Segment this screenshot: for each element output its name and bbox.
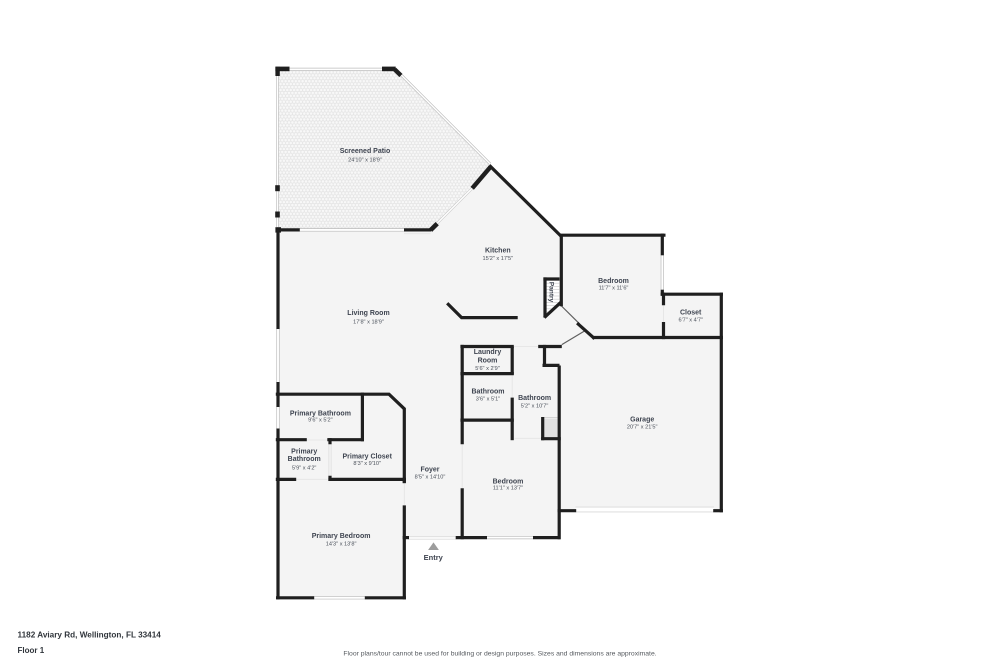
svg-text:20'7" x 21'5": 20'7" x 21'5" (627, 424, 658, 430)
svg-text:11'7" x 11'6": 11'7" x 11'6" (599, 285, 629, 291)
svg-text:Bathroom: Bathroom (471, 389, 504, 396)
svg-text:8'5" x 14'10": 8'5" x 14'10" (415, 475, 446, 481)
svg-text:Living Room: Living Room (347, 310, 389, 317)
svg-text:Foyer: Foyer (420, 467, 439, 474)
svg-text:15'2" x 17'5": 15'2" x 17'5" (482, 256, 513, 262)
svg-text:Bedroom: Bedroom (493, 479, 524, 486)
svg-text:Primary Closet: Primary Closet (342, 454, 392, 461)
svg-text:Entry: Entry (424, 553, 444, 562)
svg-text:3'6" x 5'1": 3'6" x 5'1" (476, 397, 500, 403)
svg-text:5'2" x 10'7": 5'2" x 10'7" (521, 403, 549, 409)
svg-text:6'7" x 4'7": 6'7" x 4'7" (678, 317, 702, 323)
svg-text:Floor 1: Floor 1 (18, 646, 45, 655)
svg-text:17'8" x 18'9": 17'8" x 18'9" (353, 320, 384, 326)
svg-text:Floor plans/tour cannot be use: Floor plans/tour cannot be used for buil… (343, 650, 656, 657)
svg-text:24'10" x 18'9": 24'10" x 18'9" (348, 158, 382, 164)
svg-text:5'6" x 2'9": 5'6" x 2'9" (475, 366, 499, 372)
svg-text:14'3" x 13'8": 14'3" x 13'8" (326, 541, 357, 547)
svg-text:Kitchen: Kitchen (485, 248, 511, 255)
svg-text:Screened Patio: Screened Patio (340, 148, 391, 155)
svg-text:Primary Bathroom: Primary Bathroom (290, 411, 351, 418)
svg-text:Primary: Primary (291, 449, 317, 456)
svg-text:Garage: Garage (630, 417, 654, 424)
svg-text:Bathroom: Bathroom (288, 456, 321, 463)
svg-text:5'9" x 4'2": 5'9" x 4'2" (292, 465, 316, 471)
svg-text:Pantry: Pantry (548, 282, 555, 303)
svg-text:9'6" x 5'2": 9'6" x 5'2" (308, 418, 332, 424)
svg-text:Primary Bedroom: Primary Bedroom (312, 533, 371, 540)
svg-text:Room: Room (478, 358, 498, 365)
svg-text:Laundry: Laundry (474, 349, 502, 356)
svg-text:11'1" x 13'7": 11'1" x 13'7" (493, 486, 523, 492)
svg-text:Closet: Closet (680, 310, 702, 317)
svg-text:1182 Aviary Rd, Wellington, FL: 1182 Aviary Rd, Wellington, FL 33414 (18, 630, 162, 639)
svg-text:Bedroom: Bedroom (598, 278, 629, 285)
svg-text:8'3" x 9'10": 8'3" x 9'10" (353, 461, 381, 467)
svg-text:Bathroom: Bathroom (518, 395, 551, 402)
